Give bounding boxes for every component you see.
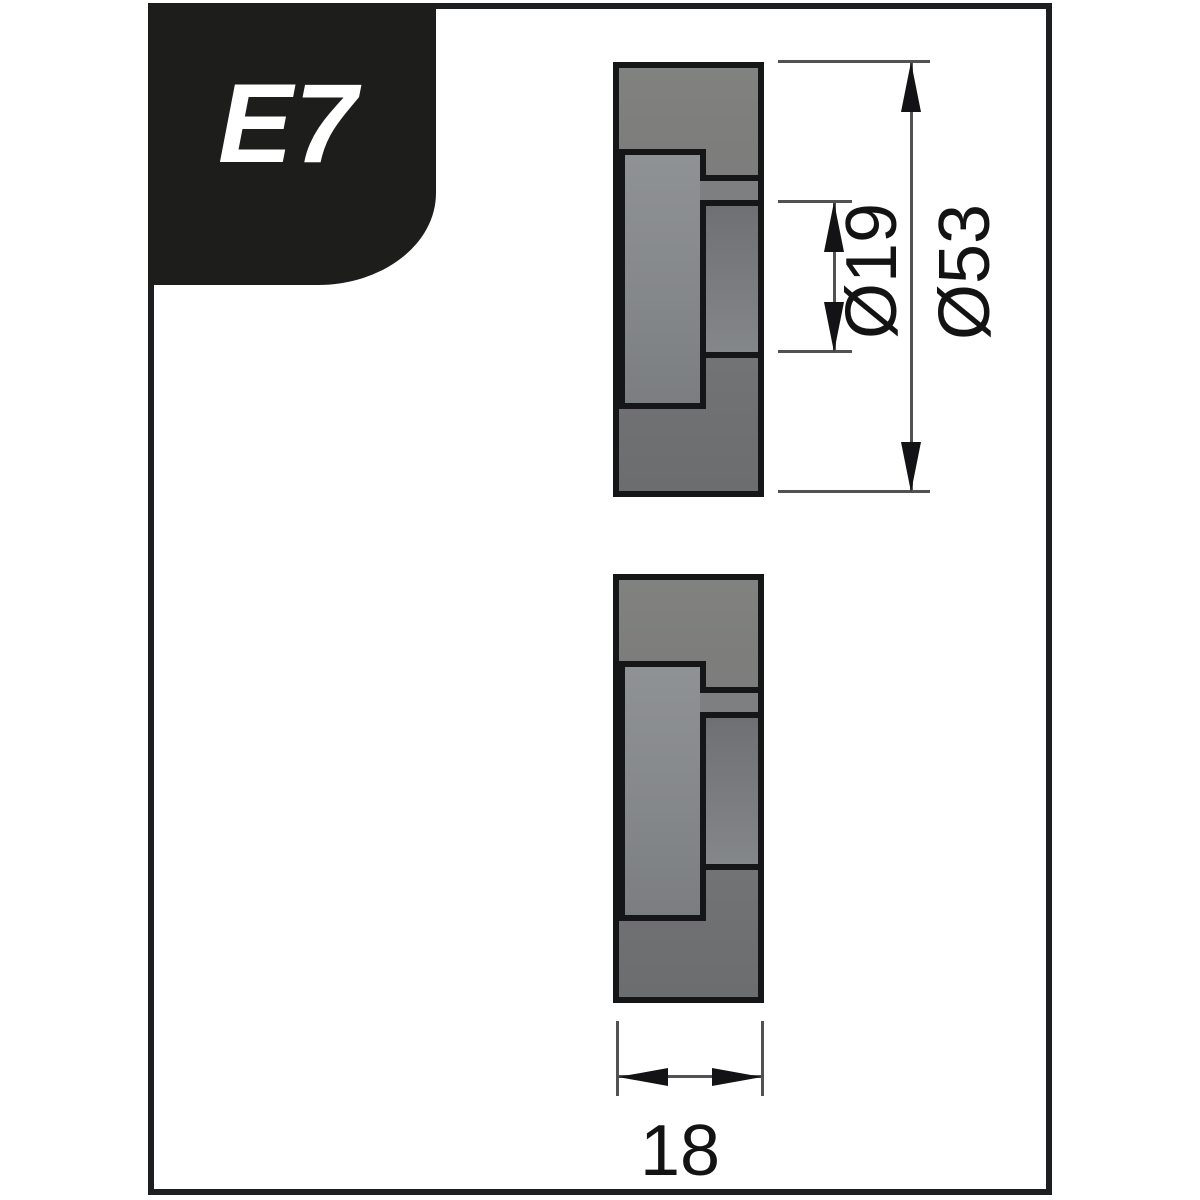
roller-groove	[700, 175, 758, 206]
roller-step-line	[700, 864, 758, 870]
roller-step-line	[700, 352, 758, 358]
width-label: 18	[640, 1115, 720, 1187]
roller-bushing	[619, 149, 706, 409]
bore-diameter-label: Ø19	[836, 203, 908, 339]
arrow-left-icon	[618, 1068, 668, 1086]
arrow-down-icon	[901, 442, 921, 492]
roller-bore-face	[706, 206, 758, 352]
outer-diameter-label: Ø53	[929, 204, 1001, 340]
corner-badge: E7	[148, 3, 436, 285]
roller-groove	[700, 687, 758, 718]
arrow-right-icon	[712, 1068, 762, 1086]
lower-roller-section	[613, 574, 764, 1003]
arrow-up-icon	[901, 62, 921, 112]
upper-roller-section	[613, 62, 764, 497]
badge-label: E7	[218, 68, 359, 180]
roller-bushing	[619, 661, 706, 921]
roller-bore-face	[706, 718, 758, 864]
